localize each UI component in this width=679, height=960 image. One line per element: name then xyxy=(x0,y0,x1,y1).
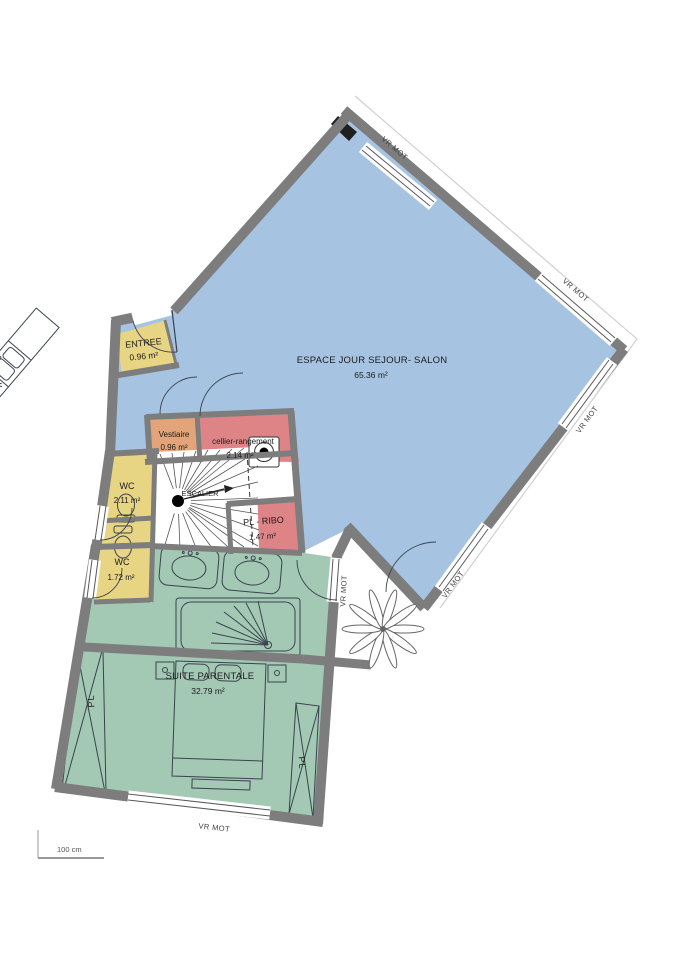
shutter-label: VR MOT xyxy=(338,575,349,607)
vestiaire-area: 0.96 m² xyxy=(160,443,187,452)
wc2-area: 1.72 m² xyxy=(107,573,134,582)
suite-label: SUITE PARENTALE xyxy=(166,671,255,682)
closet-label: PL xyxy=(297,756,308,770)
floor-plan-page: ESPACE JOUR SEJOUR- SALON 65.36 m² ENTRE… xyxy=(0,0,679,960)
vestiaire-label: Vestiaire xyxy=(159,430,190,439)
living-area: 65.36 m² xyxy=(354,370,388,380)
wc1-label: WC xyxy=(120,481,135,491)
scale-label: 100 cm xyxy=(57,845,82,854)
closet-label: PL xyxy=(86,694,97,708)
wc2-label: WC xyxy=(115,557,130,567)
shutter-label: VR MOT xyxy=(198,821,230,834)
living-label: ESPACE JOUR SEJOUR- SALON xyxy=(297,355,448,366)
cellier-area: 2.14 m² xyxy=(226,451,253,460)
plribo-area: 1.47 m² xyxy=(249,531,277,542)
kitchen-counter xyxy=(0,308,59,502)
scale-bar: 100 cm xyxy=(38,830,104,858)
suite-area: 32.79 m² xyxy=(191,686,225,696)
floor-plan: ESPACE JOUR SEJOUR- SALON 65.36 m² ENTRE… xyxy=(0,0,679,960)
cellier-label: cellier-rangement xyxy=(212,437,275,446)
escalier-label: ESCALIER xyxy=(181,489,219,498)
wc1-area: 2.11 m² xyxy=(114,496,141,505)
sink-basin xyxy=(2,346,26,369)
